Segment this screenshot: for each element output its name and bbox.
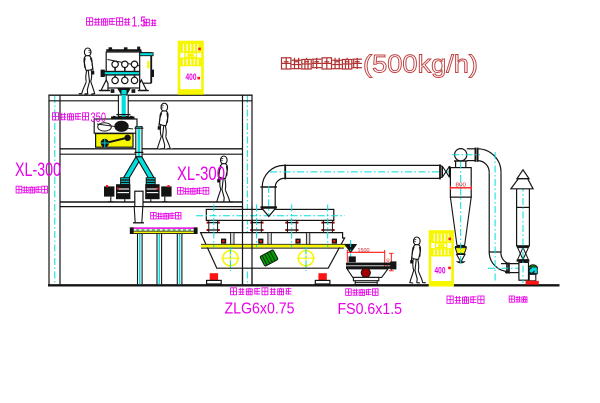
svg-text:XL-300: XL-300 xyxy=(177,163,225,185)
svg-text:ZLG6x0.75: ZLG6x0.75 xyxy=(225,300,295,317)
svg-text:400: 400 xyxy=(435,266,446,277)
svg-text:1500: 1500 xyxy=(358,248,370,254)
svg-text:400: 400 xyxy=(186,72,197,83)
svg-text:FS0.6x1.5: FS0.6x1.5 xyxy=(338,301,403,318)
svg-text:XL-300: XL-300 xyxy=(15,159,61,181)
svg-text:(500kg/h): (500kg/h) xyxy=(363,51,478,79)
svg-text:350: 350 xyxy=(91,110,107,125)
